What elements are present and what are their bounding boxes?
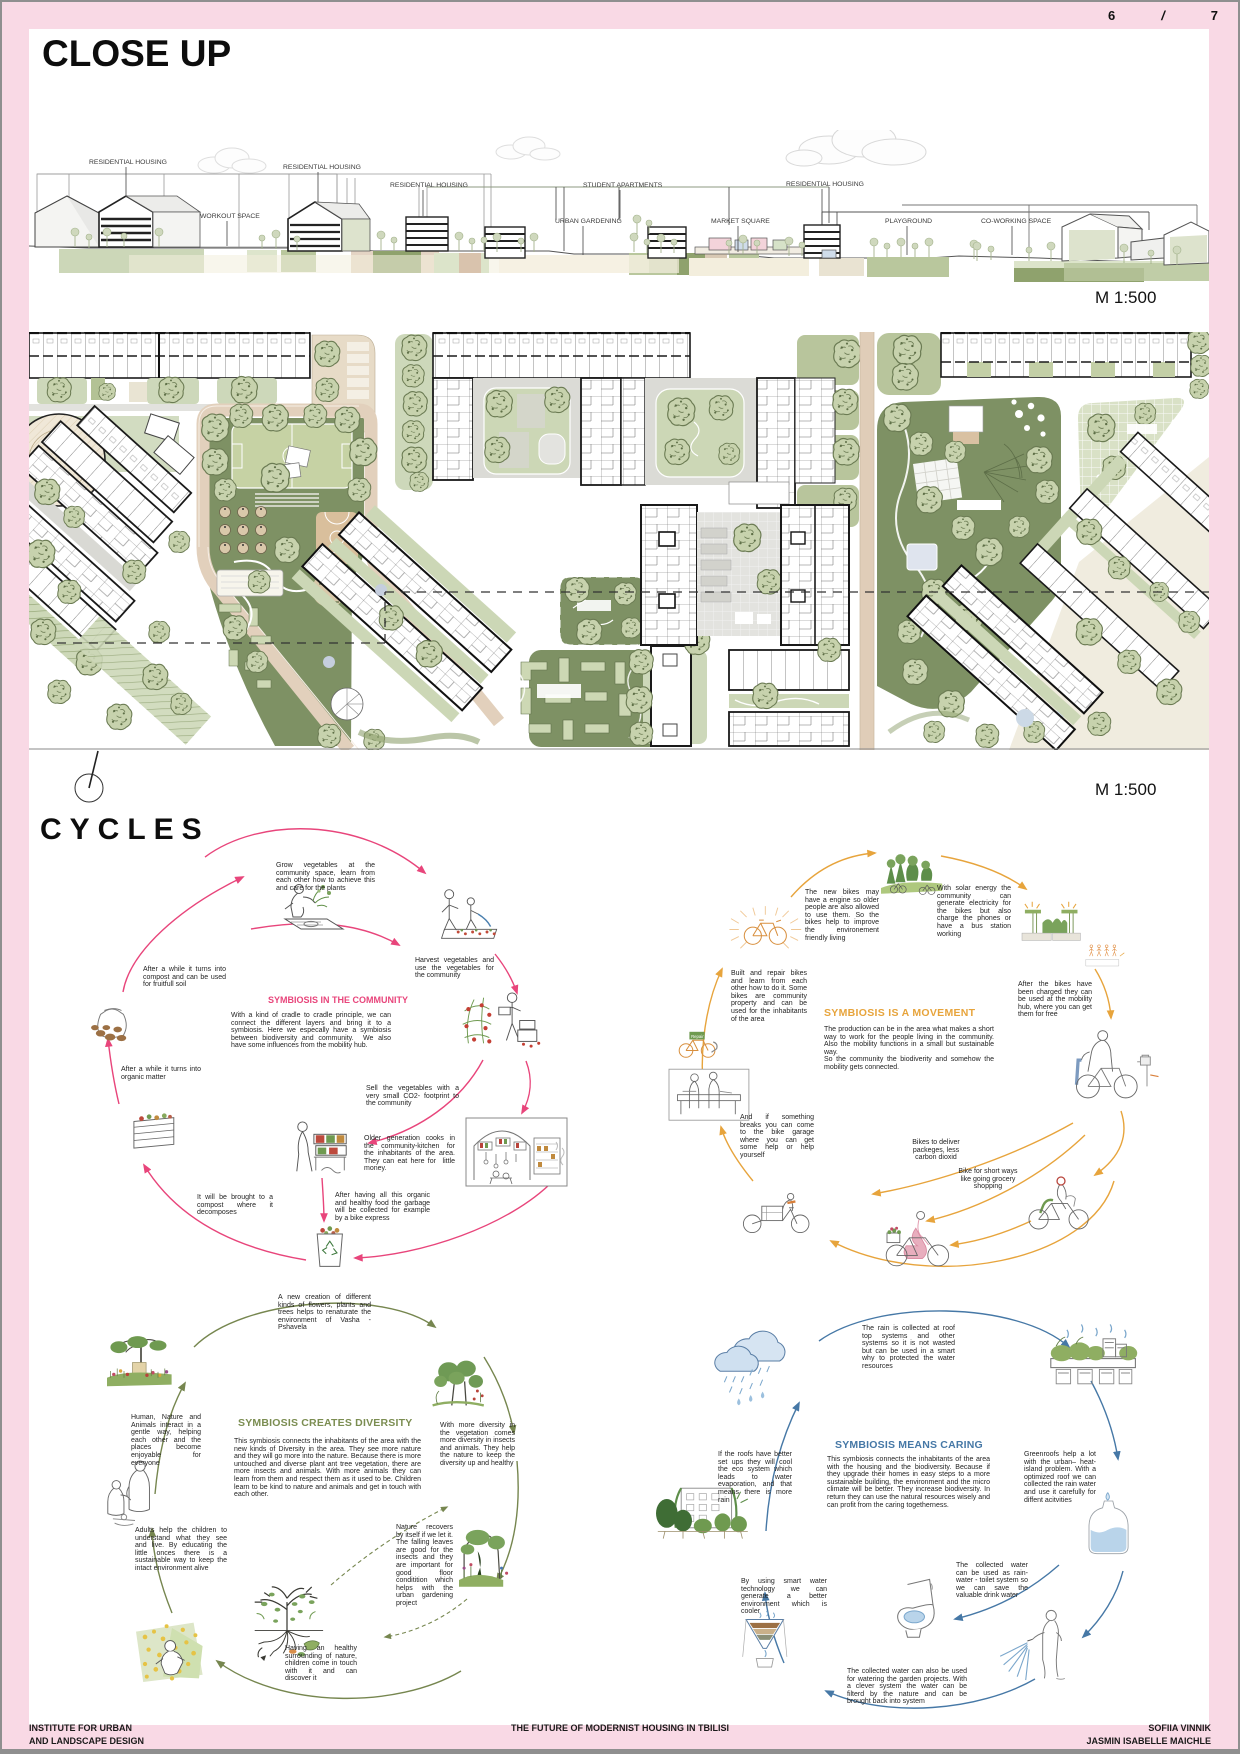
svg-text:Repair: Repair	[691, 1034, 704, 1039]
